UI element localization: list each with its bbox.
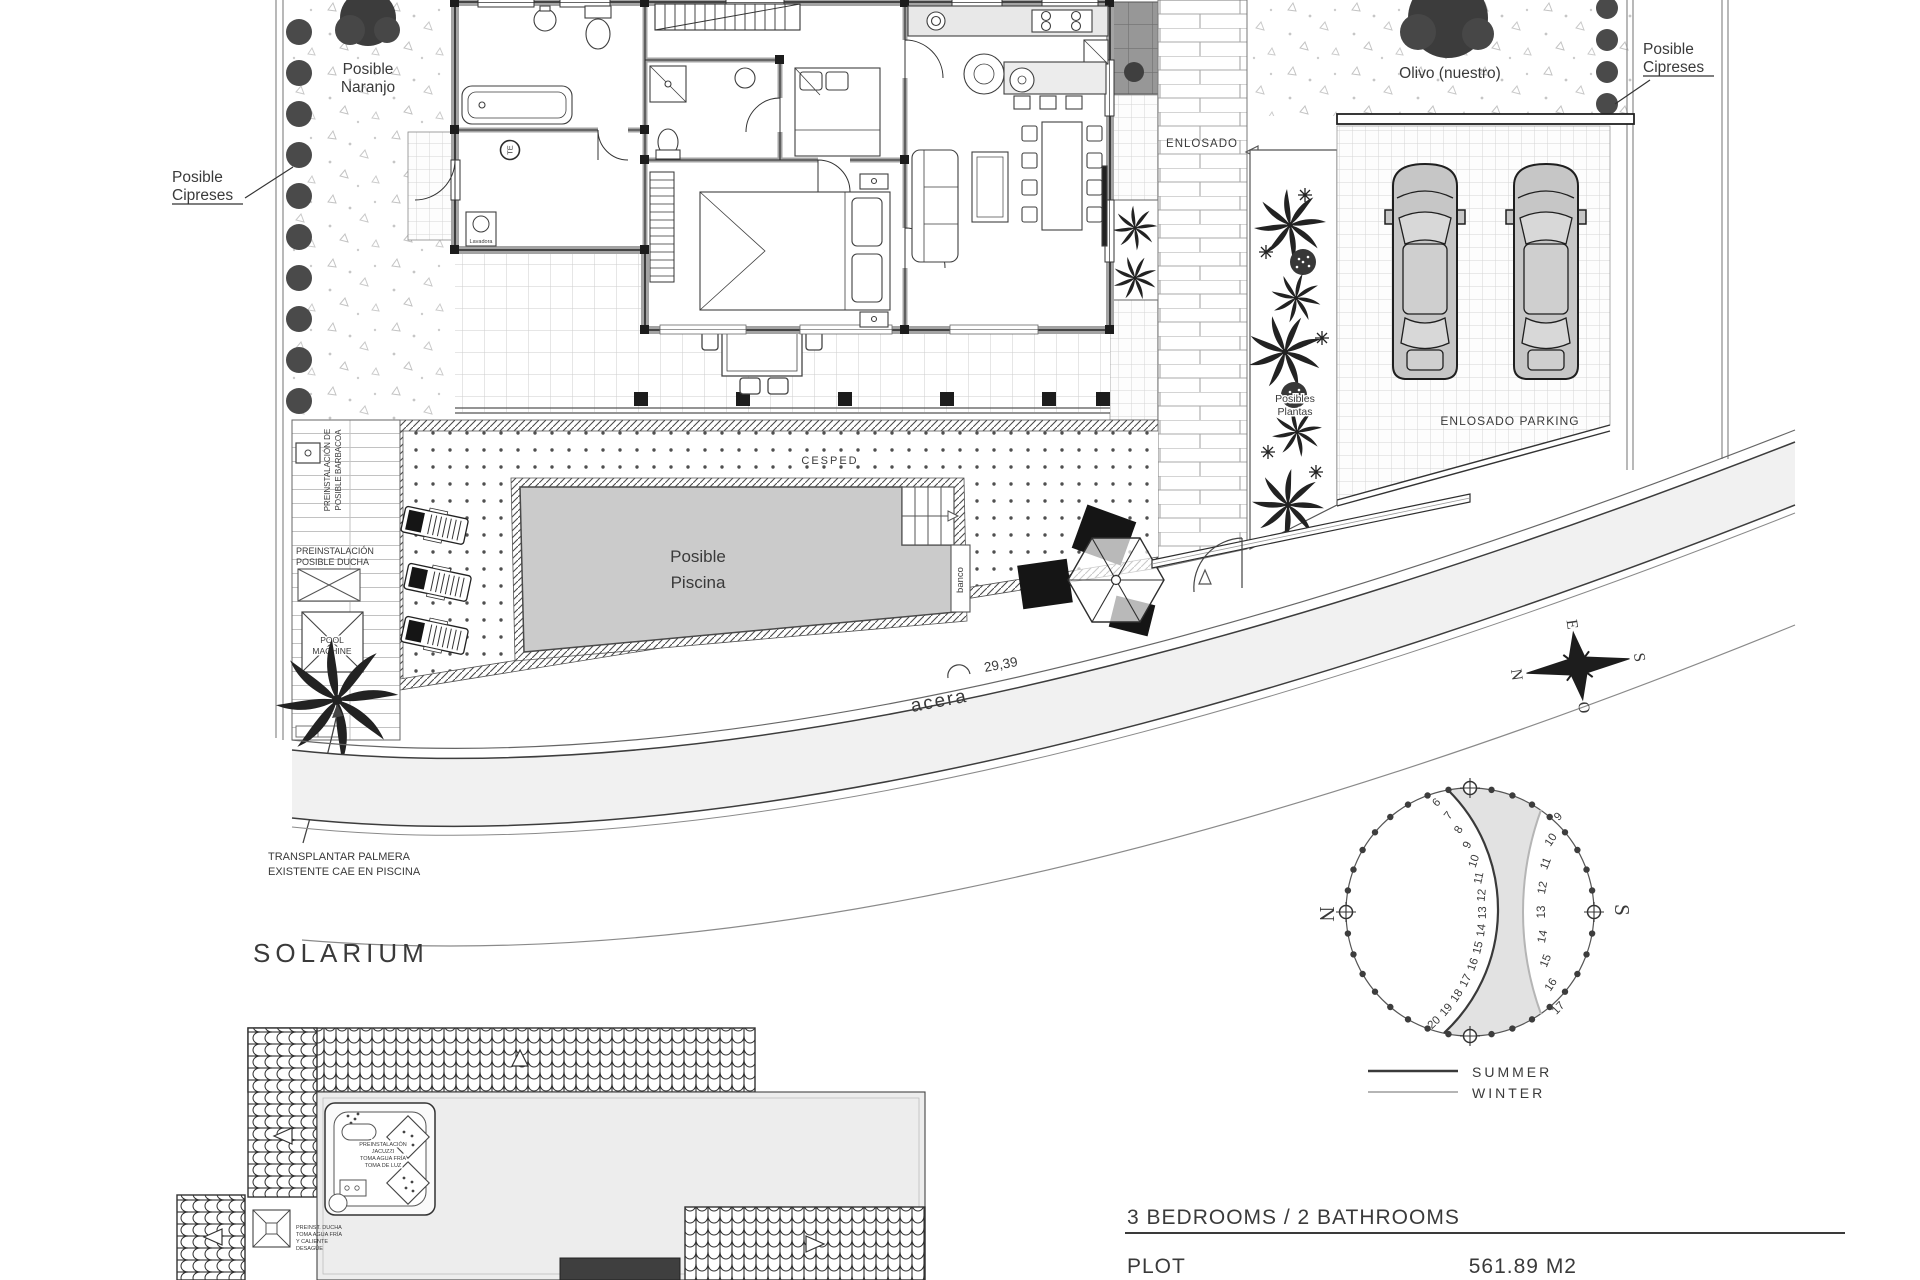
sun-outer-circle [1346,788,1594,1036]
summer-hour: 11 [1472,871,1486,885]
label-transplantar-2: EXISTENTE CAE EN PISCINA [268,866,421,878]
legend-winter: WINTER [1472,1085,1545,1101]
path-arrow-up [1199,570,1211,584]
plot-label: PLOT [1127,1255,1186,1278]
bedroom-small [795,68,880,156]
roof-band-top [248,1028,755,1092]
site-plan-page: Posible Naranjo Posible Cipreses Olivo (… [0,0,1920,1280]
entry-steps [408,132,455,240]
label-cesped: CESPED [801,455,858,467]
label-te: TE [506,145,515,155]
rooms-text: 3 BEDROOMS / 2 BATHROOMS [1127,1206,1460,1229]
solarium-title: SOLARIUM [253,938,429,968]
summer-hour: 18 [1449,987,1466,1004]
summer-hour: 9 [1461,840,1475,851]
legend-summer: SUMMER [1472,1064,1552,1080]
label-lavadora: Lavadora [470,239,494,245]
stairs [655,4,800,30]
summer-hour: 15 [1471,940,1486,955]
orange-tree [335,0,400,46]
summer-hour: 8 [1452,824,1466,836]
label-enlosado: ENLOSADO [1166,138,1238,150]
winter-hour: 16 [1543,976,1560,993]
winter-hour: 15 [1538,953,1554,969]
label-transplantar-1: TRANSPLANTAR PALMERA [268,851,411,863]
compass-s: S [1630,652,1648,663]
jacuzzi-note-4: TOMA DE LUZ [365,1163,402,1169]
roof-block-bottom-right [685,1207,925,1280]
cypress-tree [1596,29,1618,51]
hatch-band-top [392,420,1158,431]
label-olivo: Olivo (nuestro) [1399,65,1501,82]
label-posibles-plantas-1: Posibles [1275,393,1315,405]
cypress-tree [286,183,312,209]
label-pre-barbacoa-1: PREINSTALACIÓN DE [323,429,332,512]
winter-hour: 13 [1536,906,1548,919]
shower-note-3: Y CALIENTE [296,1239,328,1245]
barbecue-box [296,443,320,463]
parked-car-1 [1385,164,1465,379]
jacuzzi-note-1: PREINSTALACIÓN [359,1141,407,1148]
summer-hour: 19 [1438,1001,1455,1019]
cypress-tree [286,347,312,373]
winter-hour: 10 [1543,831,1560,848]
shower-note-4: DESAGÜE [296,1245,323,1252]
label-pre-barbacoa-2: POSIBLE BARBACOA [334,429,343,511]
cypress-tree [1596,61,1618,83]
solarium-stair-block [560,1258,680,1280]
cypress-tree [286,265,312,291]
sun-legend: SUMMER WINTER [1368,1064,1552,1101]
solarium-plan: SOLARIUM PREINSTALACIÓN JACUZZI TOMA AGU… [177,938,925,1280]
jacuzzi-note-3: TOMA AGUA FRÍA [360,1155,406,1162]
compass-n: N [1507,668,1526,682]
summer-hour: 16 [1465,957,1481,973]
winter-hour: 11 [1538,856,1554,872]
compass-e: E [1563,618,1581,630]
label-enlosado-parking: ENLOSADO PARKING [1440,414,1579,428]
label-banco: banco [955,567,966,593]
patio-cypress [1124,62,1144,82]
cipreses-left-leader [245,167,293,198]
enlosado-path [1158,0,1247,568]
right-boundary-line-2 [1722,0,1728,459]
cypress-tree [286,142,312,168]
sun-south: S [1610,904,1634,916]
label-posible-cipreses-left-1: Posible [172,169,223,186]
compass-w: O [1574,701,1592,715]
left-boundary-line [276,0,283,740]
parking-wall [1337,114,1634,124]
summer-hour: 17 [1458,972,1475,989]
cypress-tree [1596,93,1618,115]
title-block: 3 BEDROOMS / 2 BATHROOMS PLOT 561.89 M2 [1125,1206,1845,1278]
compass-rose: N E S O [1501,610,1654,723]
shower-note-2: TOMA AGUA FRÍA [296,1231,342,1238]
cypress-tree [286,224,312,250]
sun-north: N [1315,906,1339,921]
jacuzzi: PREINSTALACIÓN JACUZZI TOMA AGUA FRÍA TO… [325,1103,435,1215]
label-posibles-plantas-2: Plantas [1277,406,1312,418]
cypress-tree [286,388,312,414]
winter-hour: 17 [1550,1000,1568,1018]
label-pre-ducha-2: POSIBLE DUCHA [296,557,369,567]
dim-arc-marker [948,665,970,678]
parking-area: ENLOSADO PARKING [1337,114,1634,506]
summer-hour: 10 [1467,853,1483,869]
jacuzzi-note-2: JACUZZI [372,1149,395,1155]
cypress-tree [286,60,312,86]
label-posible-cipreses-right-2: Cipreses [1643,59,1704,76]
label-posible-piscina-2: Piscina [671,573,726,592]
cypress-tree [286,19,312,45]
summer-hour: 14 [1475,923,1489,938]
roof-band-left [248,1028,317,1197]
summer-hour: 7 [1442,810,1455,823]
parked-car-2 [1506,164,1586,379]
label-posible-naranjo-2: Naranjo [341,79,395,96]
site-plan-drawing: Posible Naranjo Posible Cipreses Olivo (… [0,0,1920,1280]
summer-hour: 13 [1477,906,1489,919]
cypress-tree [286,306,312,332]
label-posible-cipreses-right-1: Posible [1643,41,1694,58]
sun-path-diagram: 6789101112131415161718192091011121314151… [1315,778,1634,1101]
wardrobe [650,172,674,282]
pool-stairs [902,487,958,545]
cypress-tree [286,101,312,127]
shower-note-1: PREINST. DUCHA [296,1225,342,1231]
label-street-dim: 29,39 [983,654,1019,675]
summer-hour: 12 [1476,888,1489,902]
olive-tree [1400,0,1494,58]
winter-hour: 14 [1536,929,1550,944]
label-pre-ducha-1: PREINSTALACIÓN [296,546,374,556]
plot-area: 561.89 M2 [1469,1255,1577,1278]
label-posible-cipreses-left-2: Cipreses [172,187,233,204]
summer-hour: 6 [1430,796,1443,809]
winter-hour: 12 [1536,880,1550,895]
master-bedroom [700,174,890,327]
label-posible-piscina-1: Posible [670,547,726,566]
label-posible-naranjo-1: Posible [343,61,394,78]
posibles-plantas-strip: Posibles Plantas [1239,150,1337,549]
